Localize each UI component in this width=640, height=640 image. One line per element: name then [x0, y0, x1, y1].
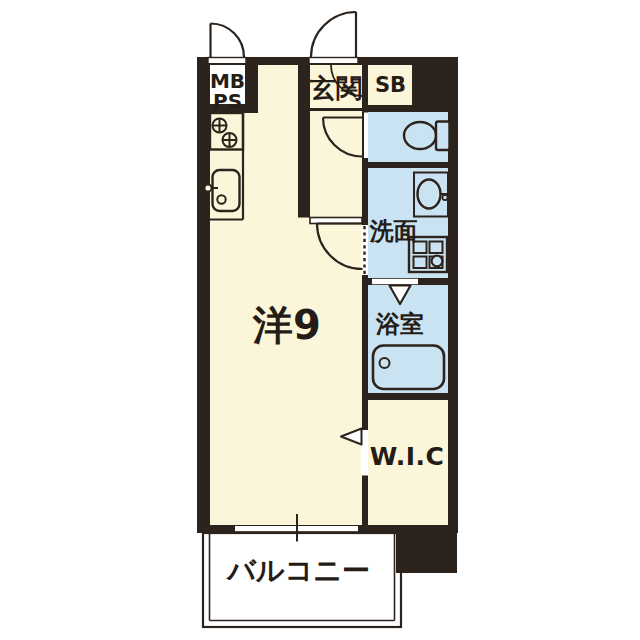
entrance-left-wall — [298, 57, 310, 218]
entrance-label: 玄関 — [309, 73, 362, 103]
washbasin-icon — [414, 173, 448, 217]
service-door-threshold — [208, 58, 246, 64]
bathroom-threshold — [372, 279, 418, 284]
bathroom-label: 浴室 — [375, 310, 424, 338]
walk-in-closet-label: W.I.C — [370, 442, 445, 471]
entrance-door-threshold — [309, 58, 358, 64]
kitchen-sink-icon — [213, 170, 240, 211]
main-room-label: 洋9 — [252, 302, 321, 348]
shoe-box-label: SB — [375, 73, 406, 97]
toilet-door-opening — [364, 113, 368, 159]
floorplan-canvas: MB PS 玄関 SB 洗面 浴室 洋9 W.I.C バルコニー — [0, 0, 640, 640]
floorplan-drawing: MB PS 玄関 SB 洗面 浴室 洋9 W.I.C バルコニー — [0, 0, 640, 640]
bathtub-icon — [373, 346, 444, 390]
entrance-step-line — [298, 108, 368, 111]
lower-right-wall-block — [396, 525, 457, 573]
balcony-label: バルコニー — [225, 554, 370, 587]
toilet-icon — [404, 122, 450, 151]
meter-box-label-line2: PS — [213, 89, 242, 113]
washroom-label: 洗面 — [369, 217, 418, 245]
